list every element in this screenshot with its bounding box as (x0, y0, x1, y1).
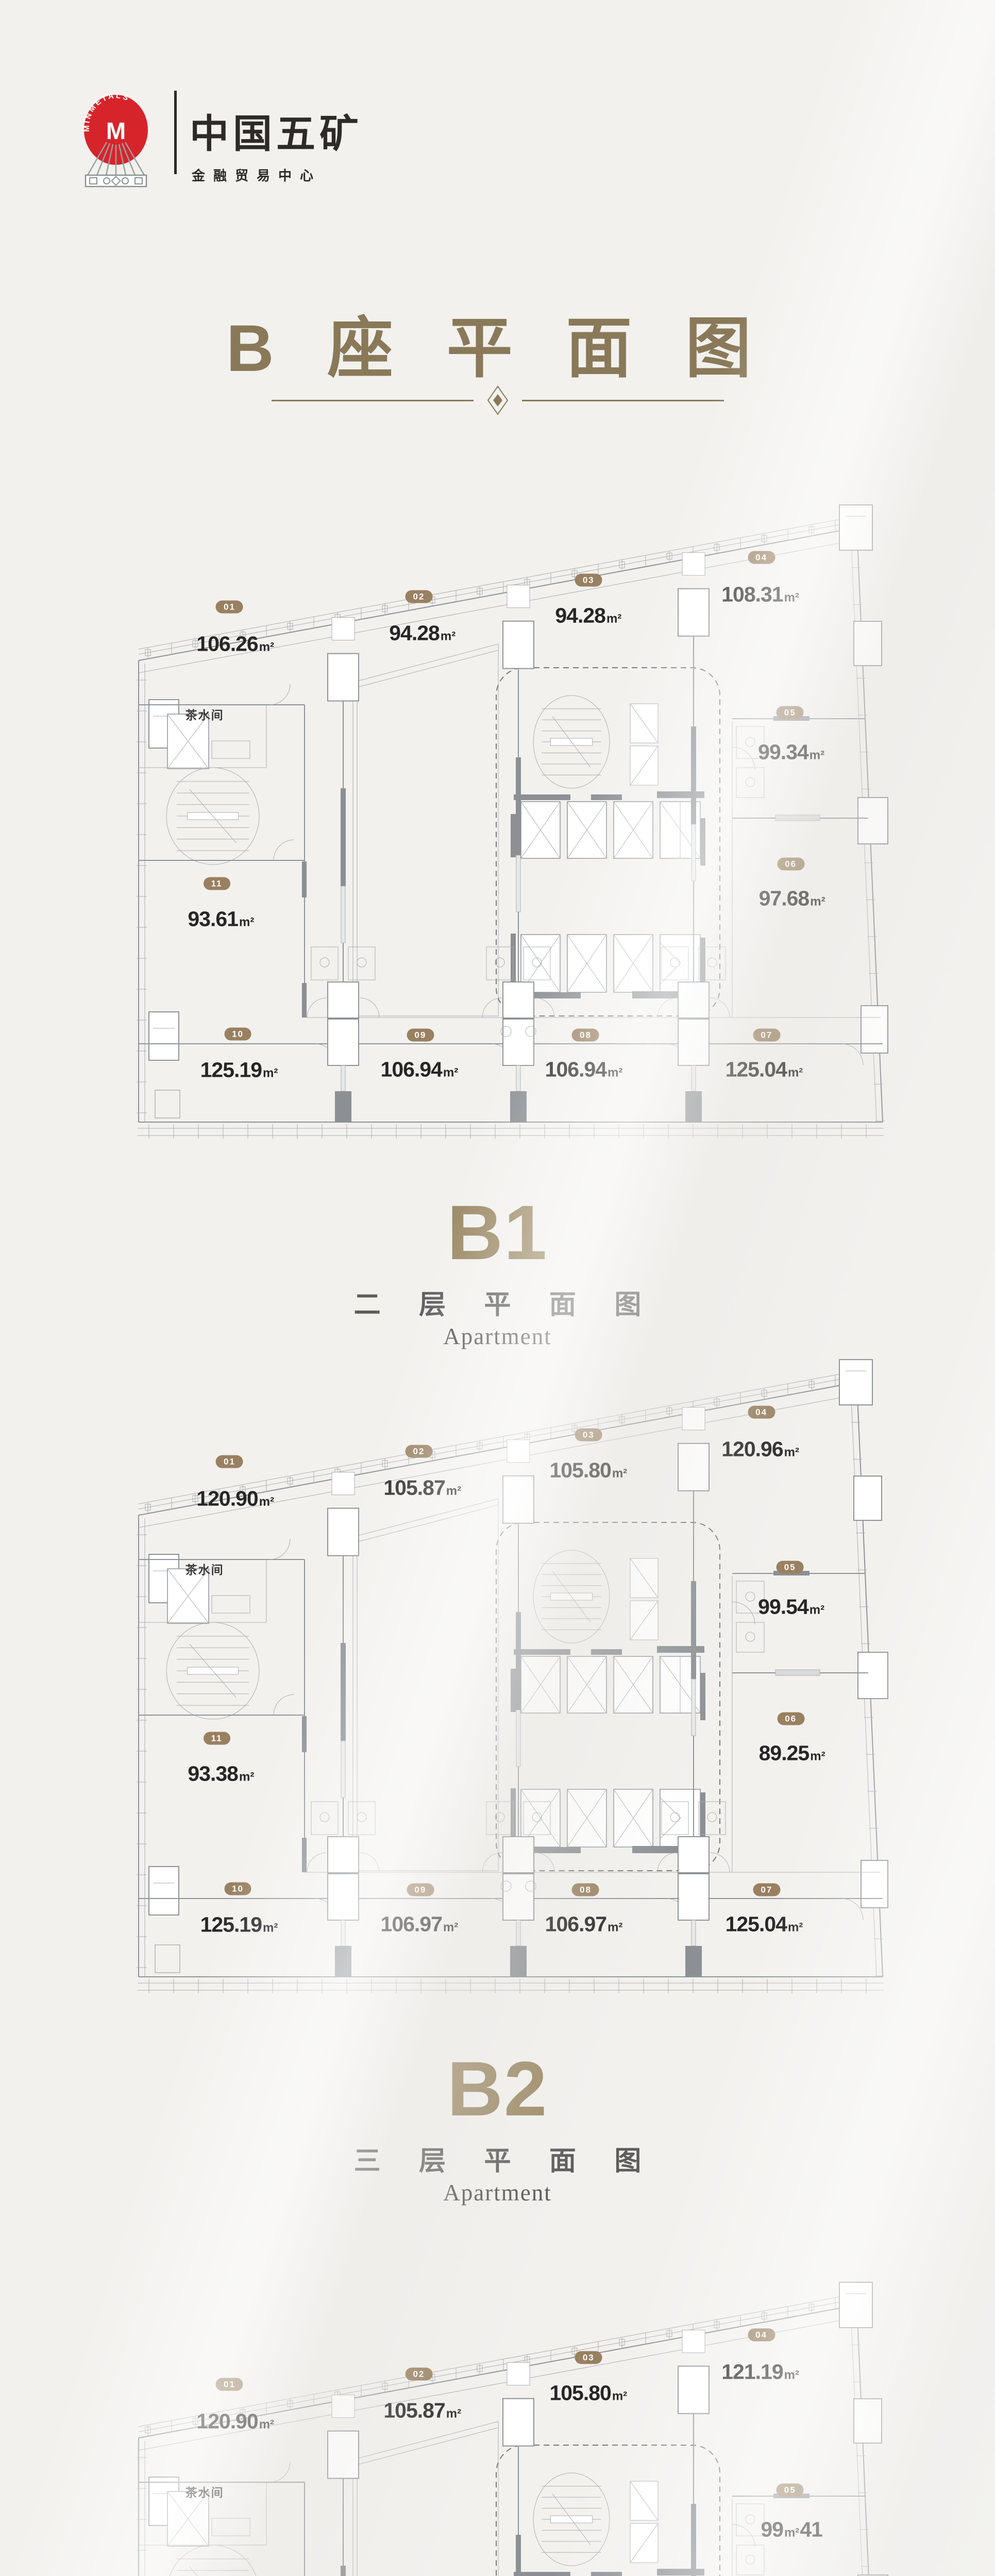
area-value: 125.19 (200, 1912, 262, 1936)
unit-area-label: 120.96m² (721, 1439, 800, 1460)
unit-area-label: 121.19m² (721, 2362, 800, 2383)
unit-area-label: 105.80m² (549, 1460, 628, 1481)
area-value: 125.04 (726, 1912, 787, 1936)
floor-plan-b3: 01120.90m²02105.87m²03105.80m²04121.19m²… (134, 2277, 889, 2576)
unit-badge: 01 (216, 1455, 243, 1468)
area-unit: m² (263, 1921, 278, 1935)
plan-caption-b2: B2 三 层 平 面 图 Apartment (0, 2046, 995, 2206)
unit-badge: 09 (407, 1028, 434, 1041)
divider-line-right (522, 400, 724, 401)
unit-area-label: 105.87m² (383, 2400, 462, 2421)
unit-badge: 01 (216, 2378, 243, 2391)
unit-area-label: 93.38m² (188, 1763, 255, 1784)
unit-badge: 02 (405, 590, 432, 603)
area-unit: m² (259, 2418, 274, 2432)
unit-area-label: 106.97m² (545, 1913, 623, 1935)
area-unit: m² (810, 1603, 824, 1617)
unit-badge: 10 (224, 1028, 251, 1041)
tea-room-label: 茶水间 (185, 705, 224, 723)
tea-room-label: 茶水间 (185, 1560, 224, 1578)
area-unit: m² (788, 1065, 803, 1079)
area-value: 106.94 (381, 1057, 442, 1081)
unit-badge: 04 (748, 1406, 775, 1419)
unit-area-label: 89.25m² (759, 1742, 826, 1764)
unit-badge: 09 (407, 1883, 434, 1896)
unit-area-label: 120.90m² (196, 1488, 275, 1510)
unit-area-label: 106.94m² (545, 1059, 623, 1080)
plan-caption-en: Apartment (0, 2180, 995, 2206)
area-value: 120.90 (196, 2410, 258, 2433)
area-value: 105.87 (383, 2398, 445, 2422)
area-unit: m² (263, 1066, 278, 1080)
minmetals-logo: MINMETALS M 中国五矿 金融贸易中心 (67, 61, 407, 195)
area-value: 108.31 (721, 583, 783, 606)
area-value: 89.25 (759, 1741, 810, 1765)
unit-badge: 03 (575, 574, 602, 587)
unit-badge: 04 (748, 2329, 775, 2342)
area-value: 105.87 (383, 1476, 445, 1499)
unit-badge: 06 (777, 857, 804, 870)
unit-area-label: 94.28m² (555, 605, 622, 626)
unit-badge: 02 (405, 2368, 432, 2381)
area-value: 125.19 (200, 1058, 262, 1081)
plan-caption-b1: B1 二 层 平 面 图 Apartment (0, 1190, 995, 1349)
tea-room-label: 茶水间 (185, 2483, 224, 2500)
unit-badge: 03 (575, 2351, 602, 2364)
area-unit: m² (608, 1065, 622, 1079)
unit-area-label: 105.87m² (383, 1477, 462, 1498)
area-value: 105.80 (549, 2381, 611, 2404)
floor-plan-b2: 01120.90m²02105.87m²03105.80m²04120.96m²… (134, 1354, 889, 2005)
area-value: 121.19 (721, 2360, 783, 2384)
area-value: 94.28 (389, 621, 440, 645)
area-value: 106.94 (545, 1057, 606, 1081)
area-unit: m² (784, 2368, 799, 2382)
area-value: 97.68 (759, 886, 810, 910)
area-value-post: 41 (800, 2517, 822, 2541)
plan-caption-cn: 三 层 平 面 图 (0, 2146, 995, 2177)
area-unit: m² (446, 2406, 461, 2420)
unit-badge: 07 (753, 1883, 780, 1896)
unit-area-label: 93.61m² (188, 908, 255, 929)
area-value: 106.26 (196, 632, 258, 656)
area-unit: m² (784, 1446, 799, 1460)
area-value: 94.28 (555, 603, 605, 627)
unit-area-label: 99.54m² (758, 1596, 825, 1617)
area-unit: m² (784, 591, 799, 605)
unit-badge: 08 (572, 1883, 599, 1896)
plan-heading: B1 (0, 1190, 995, 1275)
plan-caption-cn: 二 层 平 面 图 (0, 1290, 995, 1320)
unit-badge: 03 (575, 1429, 602, 1442)
area-value: 93.61 (188, 907, 238, 930)
unit-area-label: 125.19m² (200, 1914, 279, 1935)
logo-brand-cn: 中国五矿 (190, 112, 363, 156)
unit-area-label: 125.19m² (200, 1059, 279, 1080)
logo-pedestal-icon (86, 175, 146, 187)
page-title: B 座 平 面 图 (0, 295, 995, 390)
area-value: 99 (761, 2517, 783, 2541)
unit-area-label: 94.28m² (389, 622, 456, 643)
unit-area-label: 97.68m² (759, 888, 826, 909)
unit-badge: 01 (216, 601, 243, 614)
unit-area-label: 106.26m² (196, 634, 275, 655)
unit-badge: 08 (572, 1028, 599, 1041)
area-value: 93.38 (188, 1761, 238, 1785)
unit-badge: 11 (204, 877, 230, 890)
unit-badge: 02 (405, 1445, 432, 1458)
area-value: 120.90 (196, 1487, 258, 1511)
area-unit: m² (443, 1065, 458, 1079)
area-unit: m² (612, 1466, 627, 1480)
area-unit: m² (259, 1495, 274, 1509)
unit-area-label: 125.04m² (726, 1913, 804, 1935)
area-unit: m² (608, 1920, 622, 1934)
plan-heading: B2 (0, 2046, 995, 2131)
area-unit: m² (810, 748, 824, 762)
area-unit: m² (612, 2389, 627, 2403)
area-unit: m² (788, 1920, 803, 1934)
area-value: 106.97 (381, 1912, 442, 1936)
poster-page: { "colors": { "background": "#f2f1ee", "… (0, 0, 995, 2576)
unit-area-label: 106.97m² (381, 1913, 459, 1935)
area-unit: m² (810, 1749, 825, 1763)
unit-area-label: 125.04m² (726, 1059, 804, 1080)
area-unit: m² (441, 629, 456, 643)
logo-monogram: M (106, 117, 126, 144)
area-value: 120.96 (721, 1437, 783, 1461)
area-value: 105.80 (549, 1458, 611, 1482)
area-unit: m² (784, 2526, 799, 2539)
unit-badge: 05 (777, 1561, 804, 1573)
title-divider (0, 385, 995, 415)
logo-sub-cn: 金融贸易中心 (191, 168, 322, 183)
area-unit: m² (810, 894, 825, 908)
unit-badge: 06 (777, 1712, 804, 1725)
area-unit: m² (606, 612, 621, 625)
area-unit: m² (259, 640, 274, 654)
unit-area-label: 105.80m² (549, 2382, 628, 2403)
area-unit: m² (239, 1770, 254, 1784)
unit-badge: 05 (777, 706, 804, 719)
area-value: 106.97 (545, 1912, 606, 1936)
unit-badge: 05 (777, 2483, 804, 2496)
area-value: 125.04 (726, 1057, 787, 1081)
unit-badge: 11 (204, 1732, 230, 1744)
divider-line-left (272, 400, 474, 401)
area-value: 99.34 (758, 740, 808, 764)
area-unit: m² (239, 915, 254, 929)
unit-area-label: 106.94m² (381, 1059, 459, 1080)
unit-area-label: 99m²41 (761, 2519, 822, 2540)
floor-plan-b1: 01106.26m²0294.28m²0394.28m²04108.31m²05… (134, 500, 889, 1150)
unit-area-label: 108.31m² (721, 584, 800, 605)
plan-caption-en: Apartment (0, 1324, 995, 1349)
diamond-ornament-icon (487, 385, 509, 415)
unit-area-label: 99.34m² (758, 741, 825, 762)
unit-area-label: 120.90m² (196, 2411, 275, 2432)
unit-badge: 07 (753, 1028, 780, 1041)
logo-divider (174, 91, 177, 174)
unit-badge: 10 (224, 1883, 251, 1895)
area-unit: m² (443, 1920, 458, 1934)
area-value: 99.54 (758, 1595, 808, 1618)
area-unit: m² (446, 1484, 461, 1498)
unit-badge: 04 (748, 551, 775, 564)
